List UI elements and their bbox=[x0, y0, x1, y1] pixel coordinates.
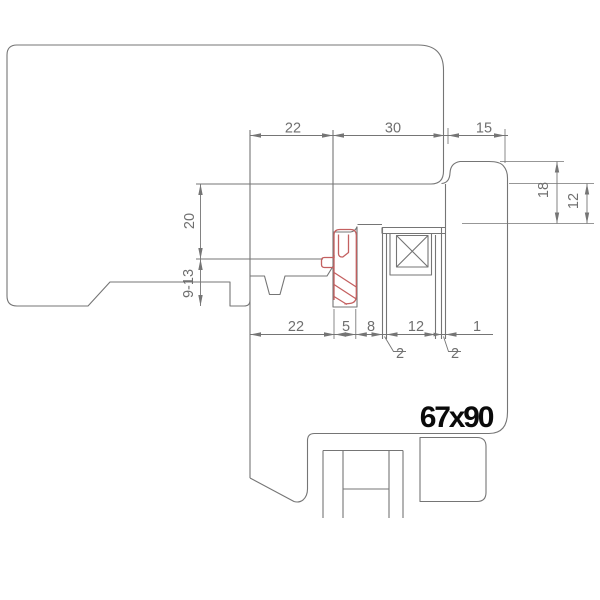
seal-groove-walls bbox=[333, 130, 382, 307]
frame-jamb-outline bbox=[7, 45, 444, 306]
seal-box-crossed bbox=[397, 236, 429, 268]
rubber-seal-profile bbox=[322, 230, 357, 305]
gap-lines bbox=[383, 184, 446, 339]
dim-label-bottom-12: 12 bbox=[408, 319, 424, 335]
dim-label-right-18: 18 bbox=[536, 182, 552, 198]
product-size-label: 67x90 bbox=[420, 401, 494, 434]
leaf-top-bar bbox=[382, 228, 445, 234]
dim-label-bottom-22: 22 bbox=[288, 319, 304, 335]
callout-label-2a: 2 bbox=[396, 346, 404, 362]
frame-profile-drawing: 22 30 15 20 9-13 18 12 22 5 8 12 1 2 2 6… bbox=[0, 0, 600, 600]
hinge-pocket bbox=[323, 451, 403, 519]
seal-fins bbox=[334, 273, 356, 305]
frame-profile-geometry bbox=[7, 45, 508, 518]
dim-label-bottom-8: 8 bbox=[367, 319, 375, 335]
dim-label-top-30: 30 bbox=[385, 121, 401, 137]
dimension-labels: 22 30 15 20 9-13 18 12 22 5 8 12 1 2 2 6… bbox=[181, 121, 582, 435]
leaf-pocket-outline bbox=[420, 438, 486, 502]
dim-label-top-22: 22 bbox=[285, 121, 301, 137]
callout-label-2b: 2 bbox=[451, 346, 459, 362]
dim-label-left-20: 20 bbox=[182, 213, 198, 229]
seal-head bbox=[334, 230, 356, 305]
rebate-face-groove bbox=[250, 266, 334, 295]
dim-label-right-12: 12 bbox=[566, 193, 582, 209]
right-ext-lines bbox=[462, 162, 594, 224]
dim-label-left-913: 9-13 bbox=[181, 269, 197, 298]
seal-chamber bbox=[339, 235, 349, 258]
dim-label-bottom-5: 5 bbox=[342, 319, 350, 335]
dim-label-bottom-1: 1 bbox=[473, 319, 481, 335]
dim-label-top-15: 15 bbox=[476, 121, 492, 137]
cad-drawing-page: 22 30 15 20 9-13 18 12 22 5 8 12 1 2 2 6… bbox=[0, 0, 600, 600]
seal-lip bbox=[322, 255, 335, 300]
